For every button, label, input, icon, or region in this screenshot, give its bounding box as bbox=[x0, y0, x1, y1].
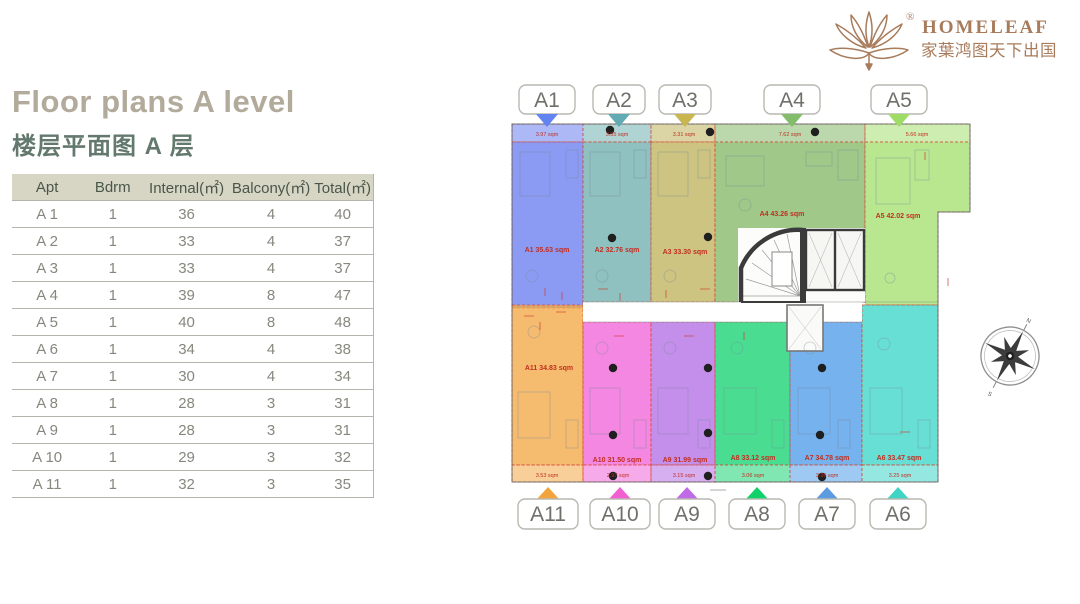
callout-a9: A9 bbox=[674, 503, 700, 526]
callout-arrow-a10 bbox=[609, 487, 631, 499]
callout-arrow-a6 bbox=[887, 487, 909, 499]
callout-arrow-a7 bbox=[816, 487, 838, 499]
callout-a10: A10 bbox=[601, 503, 638, 526]
lotus-icon bbox=[830, 12, 908, 70]
balcony-label-a4: 7.62 sqm bbox=[779, 132, 802, 138]
balcony-label-a10: 2.97 sqm bbox=[607, 473, 630, 479]
brochure-page: Floor plans A level 楼层平面图 A 层 HOMELEAF 家… bbox=[0, 0, 1080, 604]
area-label-a1: A1 35.63 sqm bbox=[525, 247, 570, 254]
unit-a8 bbox=[715, 322, 790, 465]
callout-a4: A4 bbox=[779, 89, 805, 112]
balcony-label-a5: 5.66 sqm bbox=[906, 132, 929, 138]
balcony-label-a9: 3.15 sqm bbox=[673, 473, 696, 479]
stair-shaft bbox=[772, 252, 792, 286]
area-label-a4: A4 43.26 sqm bbox=[760, 211, 805, 218]
callout-a6: A6 bbox=[885, 503, 911, 526]
callout-a7: A7 bbox=[814, 503, 840, 526]
callout-arrow-a9 bbox=[676, 487, 698, 499]
top-unit-callouts: A1 A2 A3 A4 A5 bbox=[519, 85, 927, 127]
callout-a1: A1 bbox=[534, 89, 560, 112]
unit-a9 bbox=[651, 322, 715, 465]
compass-icon: N S bbox=[962, 305, 1055, 411]
bottom-unit-callouts: A11 A10 A9 A8 A7 A6 bbox=[518, 487, 926, 529]
callout-arrow-a11 bbox=[537, 487, 559, 499]
elevator-block bbox=[806, 230, 864, 290]
callout-a2: A2 bbox=[606, 89, 632, 112]
area-label-a7: A7 34.78 sqm bbox=[805, 455, 850, 462]
callout-a3: A3 bbox=[672, 89, 698, 112]
area-label-a10: A10 31.50 sqm bbox=[593, 457, 642, 464]
floorplan-graphic: A1 35.63 sqm A2 32.76 sqm A3 33.30 sqm A… bbox=[0, 0, 1080, 604]
unit-a10 bbox=[583, 322, 651, 465]
callout-a5: A5 bbox=[886, 89, 912, 112]
callout-a8: A8 bbox=[744, 503, 770, 526]
unit-a2 bbox=[583, 142, 651, 302]
unit-a3 bbox=[651, 142, 715, 302]
balcony-label-a7: 3.36 sqm bbox=[816, 473, 839, 479]
area-label-a8: A8 33.12 sqm bbox=[731, 455, 776, 462]
area-label-a2: A2 32.76 sqm bbox=[595, 247, 640, 254]
area-label-a5: A5 42.02 sqm bbox=[876, 213, 921, 220]
area-label-a9: A9 31.99 sqm bbox=[663, 457, 708, 464]
unit-a11 bbox=[512, 305, 583, 465]
unit-a1 bbox=[512, 142, 583, 308]
balcony-label-a11: 3.53 sqm bbox=[536, 473, 559, 479]
balcony-label-a1: 3.97 sqm bbox=[536, 132, 559, 138]
callout-arrow-a8 bbox=[746, 487, 768, 499]
area-label-a11: A11 34.83 sqm bbox=[525, 365, 573, 372]
registered-mark: ® bbox=[906, 11, 914, 23]
unit-a6 bbox=[862, 305, 938, 465]
balcony-label-a3: 3.31 sqm bbox=[673, 132, 696, 138]
unit-a5 bbox=[865, 142, 970, 305]
callout-a11: A11 bbox=[530, 503, 566, 526]
area-label-a3: A3 33.30 sqm bbox=[663, 249, 708, 256]
compass-south-label: S bbox=[986, 391, 992, 398]
compass-north-label: N bbox=[1025, 318, 1032, 325]
balcony-label-a2: 3.55 sqm bbox=[606, 132, 629, 138]
balcony-label-a8: 3.06 sqm bbox=[742, 473, 765, 479]
area-label-a6: A6 33.47 sqm bbox=[877, 455, 922, 462]
balcony-label-a6: 3.25 sqm bbox=[889, 473, 912, 479]
